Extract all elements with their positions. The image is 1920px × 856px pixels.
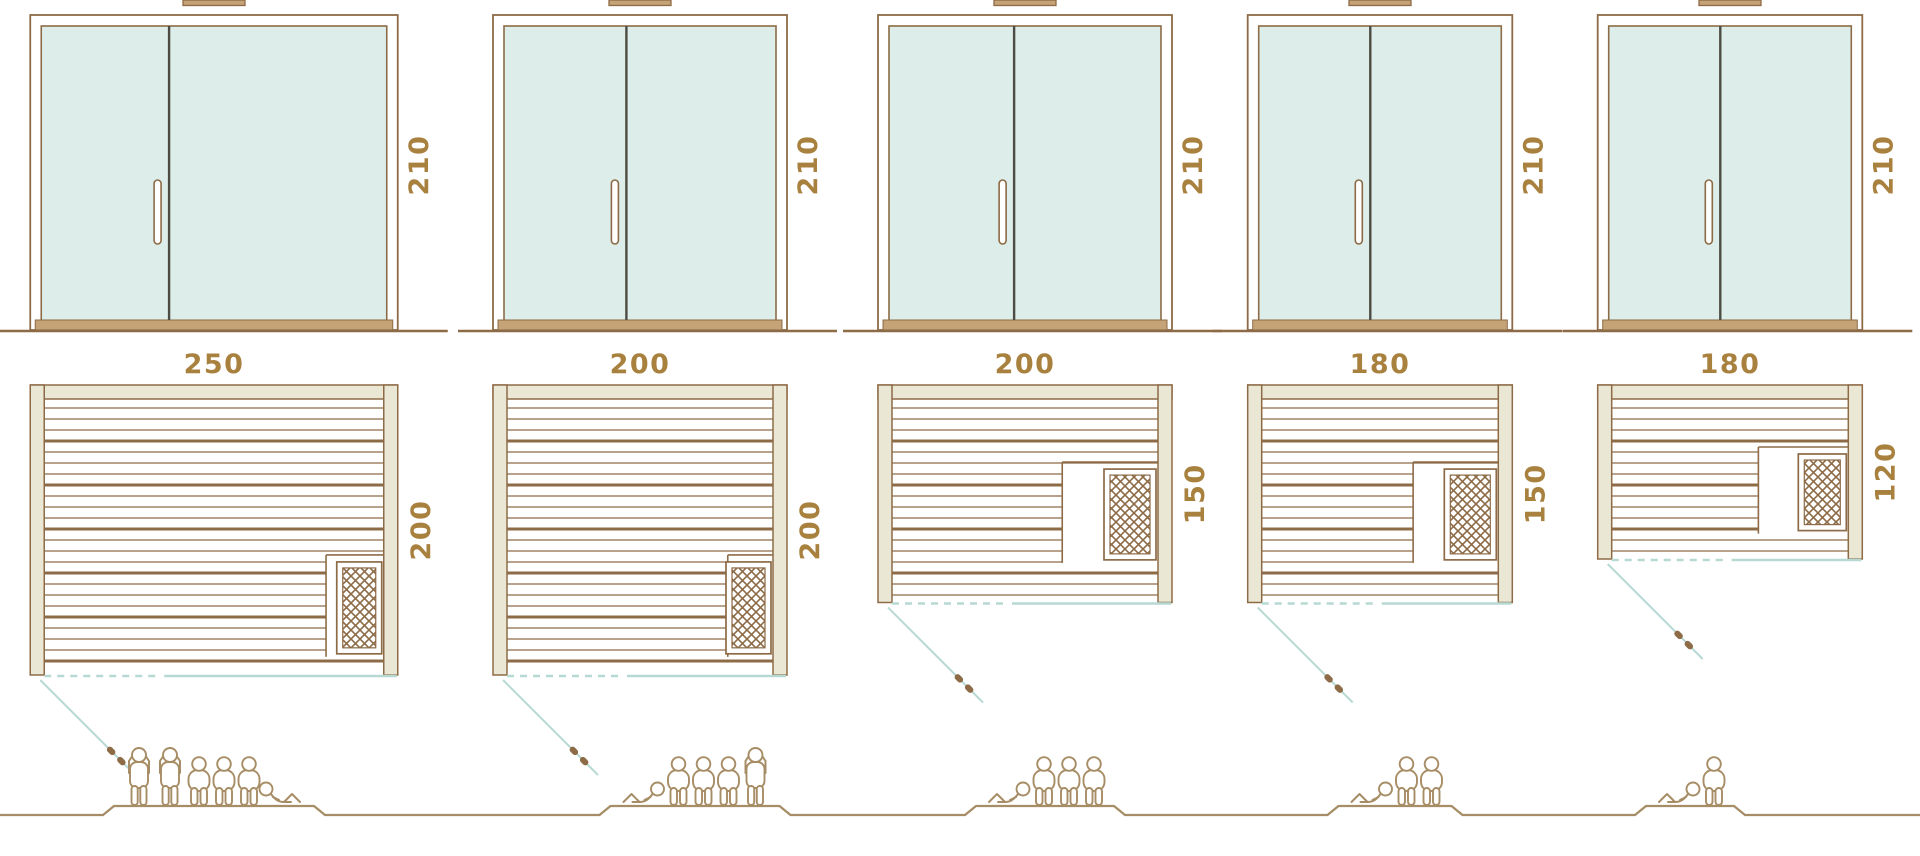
- plan-wall: [1248, 385, 1513, 399]
- floor-plan-sauna-180x150: 180150: [1248, 349, 1552, 703]
- plan-wall: [1848, 385, 1862, 559]
- door-threshold: [35, 320, 393, 330]
- person-seated-icon: [693, 757, 714, 805]
- door-glass: [41, 26, 387, 322]
- ground-line: [0, 806, 1920, 815]
- person-lying-icon: [260, 783, 301, 803]
- door-height-label: 210: [404, 135, 435, 196]
- plan-wall: [878, 385, 1172, 399]
- person-seated-icon: [189, 757, 210, 805]
- person-seated-icon: [1059, 757, 1080, 805]
- plan-wall: [878, 385, 892, 603]
- door-threshold: [1603, 320, 1858, 330]
- door-glass: [1259, 26, 1502, 322]
- person-seated-icon: [1034, 757, 1055, 805]
- plan-depth-label: 120: [1870, 442, 1901, 503]
- plan-wall: [1158, 385, 1172, 603]
- door-handle-icon: [611, 180, 618, 244]
- person-standing-icon: [746, 748, 766, 805]
- door-height-label: 210: [793, 135, 824, 196]
- person-seated-icon: [239, 757, 260, 805]
- person-lying-icon: [1352, 783, 1393, 803]
- capacity-figures-sauna-200x200: [624, 748, 766, 805]
- person-seated-icon: [668, 757, 689, 805]
- plan-width-label: 180: [1350, 349, 1411, 380]
- plan-wall: [773, 385, 787, 675]
- plan-width-label: 180: [1700, 349, 1761, 380]
- plan-wall: [384, 385, 398, 675]
- door-elevation-sauna-180x120: 210: [1563, 0, 1913, 331]
- heater-element-icon: [1110, 475, 1150, 554]
- person-lying-icon: [624, 783, 665, 803]
- heater-element-icon: [1804, 460, 1840, 525]
- door-lintel: [994, 0, 1056, 6]
- capacity-figures-sauna-180x150: [1352, 757, 1443, 805]
- plan-depth-label: 150: [1520, 463, 1551, 524]
- door-handle-icon: [154, 180, 161, 244]
- floor-plan-sauna-200x200: 200200: [493, 349, 826, 775]
- floor-plan-sauna-180x120: 180120: [1598, 349, 1902, 659]
- door-height-label: 210: [1868, 135, 1899, 196]
- door-handle-icon: [1355, 180, 1362, 244]
- door-handle-icon: [999, 180, 1006, 244]
- capacity-figures-sauna-200x150: [989, 757, 1105, 805]
- person-lying-icon: [1659, 783, 1700, 803]
- person-seated-icon: [718, 757, 739, 805]
- person-seated-icon: [1084, 757, 1105, 805]
- plan-width-label: 200: [995, 349, 1056, 380]
- door-height-label: 210: [1178, 135, 1209, 196]
- door-lintel: [609, 0, 671, 6]
- sauna-size-diagram: 2102502002102002002102001502101801502101…: [0, 0, 1920, 856]
- door-elevation-sauna-180x150: 210: [1213, 0, 1563, 331]
- door-handle-icon: [1705, 180, 1712, 244]
- diagram-svg-root: 2102502002102002002102001502101801502101…: [0, 0, 1920, 856]
- heater-element-icon: [732, 568, 765, 648]
- person-seated-icon: [214, 757, 235, 805]
- plan-width-label: 200: [610, 349, 671, 380]
- door-lintel: [1699, 0, 1761, 6]
- plan-wall: [1498, 385, 1512, 603]
- person-seated-icon: [1396, 757, 1417, 805]
- plan-wall: [1248, 385, 1262, 603]
- door-threshold: [883, 320, 1167, 330]
- heater-element-icon: [1450, 475, 1490, 554]
- person-standing-icon: [160, 748, 180, 805]
- floor-plan-sauna-250x200: 250200: [30, 349, 437, 775]
- plan-wall: [1598, 385, 1612, 559]
- plan-depth-label: 200: [406, 500, 437, 561]
- door-height-label: 210: [1518, 135, 1549, 196]
- door-threshold: [1253, 320, 1508, 330]
- plan-depth-label: 200: [795, 500, 826, 561]
- plan-wall: [493, 385, 507, 675]
- capacity-figures-sauna-180x120: [1659, 757, 1725, 805]
- door-lintel: [183, 0, 245, 6]
- person-seated-icon: [1704, 757, 1725, 805]
- person-lying-icon: [989, 783, 1030, 803]
- door-glass: [889, 26, 1161, 322]
- plan-wall: [30, 385, 44, 675]
- door-elevation-sauna-200x200: 210: [458, 0, 837, 331]
- door-glass: [1609, 26, 1852, 322]
- door-glass: [504, 26, 776, 322]
- heater-element-icon: [343, 568, 376, 648]
- person-standing-icon: [129, 748, 149, 805]
- plan-wall: [1598, 385, 1863, 399]
- plan-width-label: 250: [184, 349, 245, 380]
- plan-wall: [493, 385, 787, 399]
- door-lintel: [1349, 0, 1411, 6]
- plan-depth-label: 150: [1180, 463, 1211, 524]
- door-threshold: [498, 320, 782, 330]
- door-elevation-sauna-250x200: 210: [0, 0, 448, 331]
- door-elevation-sauna-200x150: 210: [843, 0, 1222, 331]
- floor-plan-sauna-200x150: 200150: [878, 349, 1211, 703]
- capacity-figures-sauna-250x200: [129, 748, 300, 805]
- person-seated-icon: [1421, 757, 1442, 805]
- plan-wall: [30, 385, 398, 399]
